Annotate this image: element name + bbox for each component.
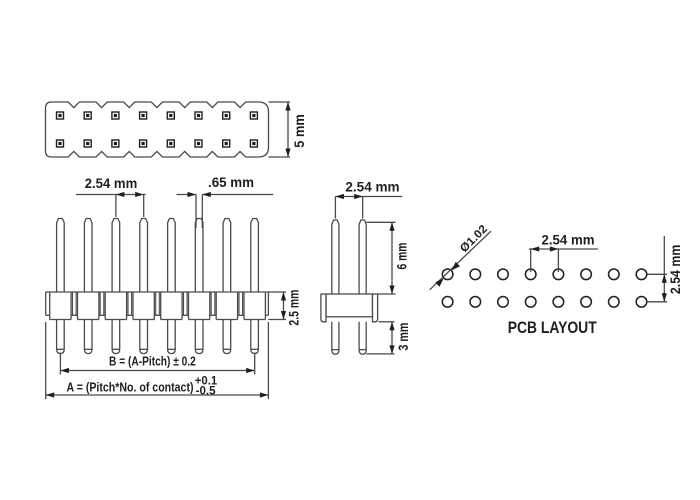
svg-text:2.5 mm: 2.5 mm <box>287 290 302 326</box>
svg-text:5 mm: 5 mm <box>292 114 307 148</box>
svg-text:2.54 mm: 2.54 mm <box>345 179 399 194</box>
svg-text:3 mm: 3 mm <box>396 323 411 351</box>
svg-text:B = (A-Pitch) ± 0.2: B = (A-Pitch) ± 0.2 <box>109 355 196 369</box>
svg-text:A = (Pitch*No. of contact): A = (Pitch*No. of contact) <box>67 381 194 395</box>
svg-text:2.54 mm: 2.54 mm <box>668 245 683 294</box>
svg-text:2.54 mm: 2.54 mm <box>85 176 138 191</box>
svg-text:-0.5: -0.5 <box>196 384 216 398</box>
svg-text:.65 mm: .65 mm <box>208 175 254 190</box>
svg-text:2.54 mm: 2.54 mm <box>542 232 595 247</box>
svg-text:PCB LAYOUT: PCB LAYOUT <box>508 319 597 337</box>
svg-text:6 mm: 6 mm <box>395 243 410 270</box>
